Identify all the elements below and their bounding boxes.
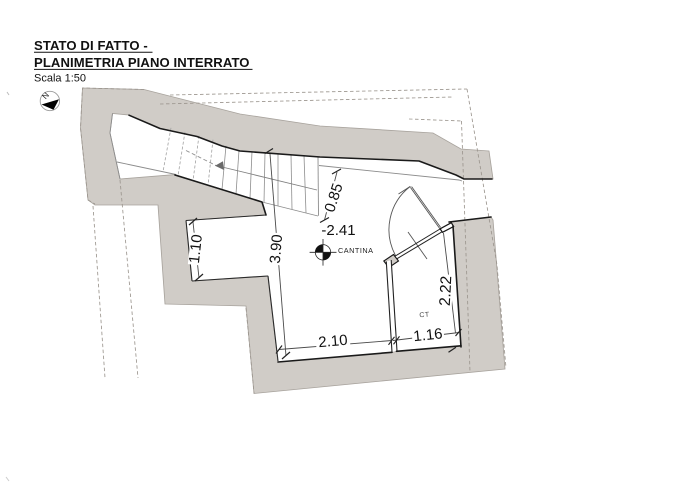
svg-text:3.90: 3.90: [267, 234, 286, 264]
svg-text:PLANIMETRIA PIANO INTERRATO: PLANIMETRIA PIANO INTERRATO: [34, 55, 250, 70]
svg-text:-2.41: -2.41: [321, 222, 355, 239]
svg-text:1.16: 1.16: [413, 325, 444, 345]
svg-text:CANTINA: CANTINA: [338, 246, 374, 255]
svg-text:Scala 1:50: Scala 1:50: [34, 73, 86, 85]
svg-text:STATO DI FATTO -: STATO DI FATTO -: [34, 38, 148, 53]
svg-text:CT: CT: [419, 311, 430, 319]
svg-text:2.22: 2.22: [437, 275, 456, 306]
svg-text:1.10: 1.10: [186, 234, 206, 265]
svg-text:2.10: 2.10: [318, 332, 349, 351]
